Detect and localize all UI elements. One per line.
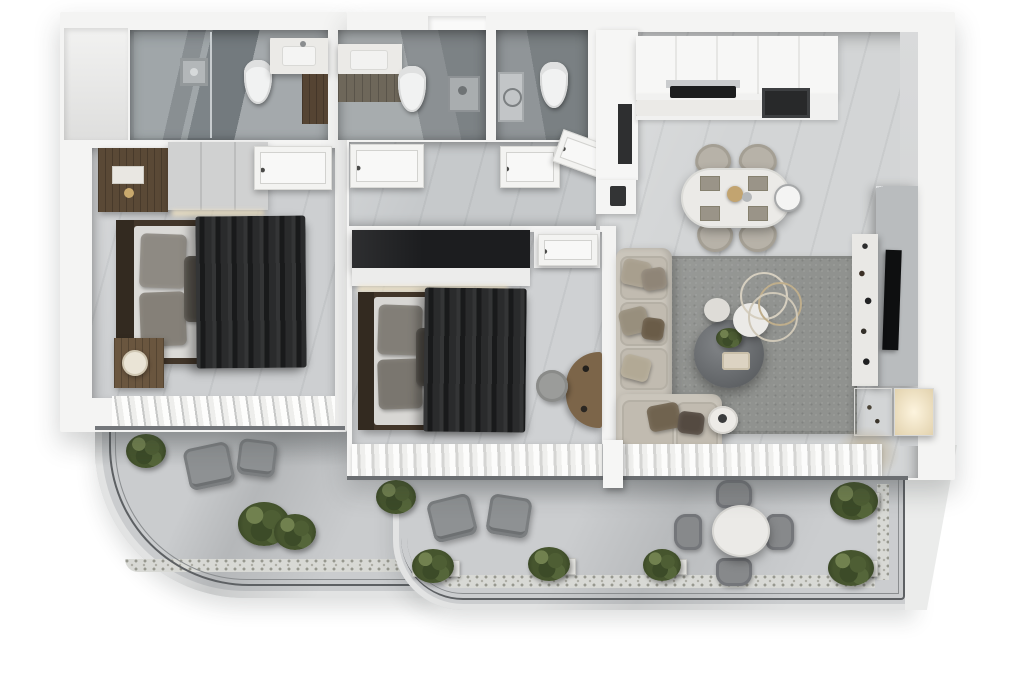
side-table-small	[704, 298, 730, 322]
terrace-chair	[766, 514, 794, 550]
floor-plan-render	[0, 0, 1024, 683]
kitchen-tall-unit-appliance	[618, 104, 632, 164]
ensuite-vanity-side	[302, 74, 328, 124]
lit-shelf	[894, 388, 934, 436]
window-track	[95, 426, 345, 430]
master-bedroom-door	[254, 146, 332, 190]
kitchen-sink	[610, 186, 626, 206]
kitchen-marble-splashback	[636, 100, 770, 116]
terrace-lounge-chair	[485, 493, 533, 539]
terrace-chair	[716, 480, 752, 508]
throw-pillow	[641, 317, 666, 342]
bathroom-sink	[350, 50, 388, 70]
terrace-bush	[412, 549, 454, 583]
sofa-side-table-decor	[718, 414, 727, 423]
bathroom-vanity-cabinet	[338, 74, 402, 102]
service-shaft	[64, 28, 128, 140]
terrace-bush	[643, 549, 681, 581]
table-carafe	[742, 192, 752, 202]
cooktop	[670, 86, 736, 98]
dresser-lamp	[124, 188, 134, 198]
place-setting	[700, 176, 720, 191]
terrace-bush	[376, 480, 416, 514]
ensuite-sink	[282, 46, 316, 66]
ring-decor	[748, 292, 798, 342]
terrace-bush	[528, 547, 570, 581]
bed-throw-blanket	[195, 216, 306, 369]
terrace-bistro-table	[712, 505, 770, 557]
terrace-lounge-chair	[236, 438, 278, 478]
display-console	[852, 234, 878, 386]
bedroom-wardrobe	[168, 142, 268, 210]
utility-column-dial	[503, 88, 522, 107]
second-bedroom-door	[538, 234, 598, 266]
bed-throw-blanket	[423, 287, 527, 432]
second-bedroom-curtains	[352, 444, 602, 476]
bedroom-living-divider-wall	[600, 226, 616, 444]
bed-pillow	[139, 233, 187, 289]
table-centerpiece	[727, 186, 743, 202]
coffee-table-tray	[722, 352, 750, 370]
black-wardrobe	[352, 230, 530, 268]
terrace-bush	[126, 434, 166, 468]
terrace-bush	[830, 482, 878, 520]
living-room-curtains	[620, 444, 882, 476]
master-bedroom-window-louvers	[112, 396, 335, 426]
terrace-chair	[674, 514, 702, 550]
hallway-door	[500, 146, 560, 188]
place-setting	[748, 176, 768, 191]
place-setting	[748, 206, 768, 221]
dressing-stool	[536, 370, 568, 402]
dresser-tray	[112, 166, 144, 184]
ensuite-faucet	[300, 41, 306, 47]
built-in-oven	[762, 88, 810, 118]
headboard	[358, 292, 374, 430]
terrace-bush	[274, 514, 316, 550]
place-setting	[700, 206, 720, 221]
shower-fitting-head	[458, 86, 467, 95]
window-track	[347, 476, 908, 480]
terrace-chair	[716, 558, 752, 586]
nightstand-lamp	[122, 350, 148, 376]
hallway-door	[350, 144, 424, 188]
terrace-bush	[828, 550, 874, 586]
closet-unit	[352, 268, 530, 286]
facade-column	[603, 440, 623, 488]
throw-pillow	[677, 410, 705, 435]
shower-drain	[190, 68, 198, 76]
wall-clock	[774, 184, 802, 212]
throw-pillow	[640, 266, 667, 291]
